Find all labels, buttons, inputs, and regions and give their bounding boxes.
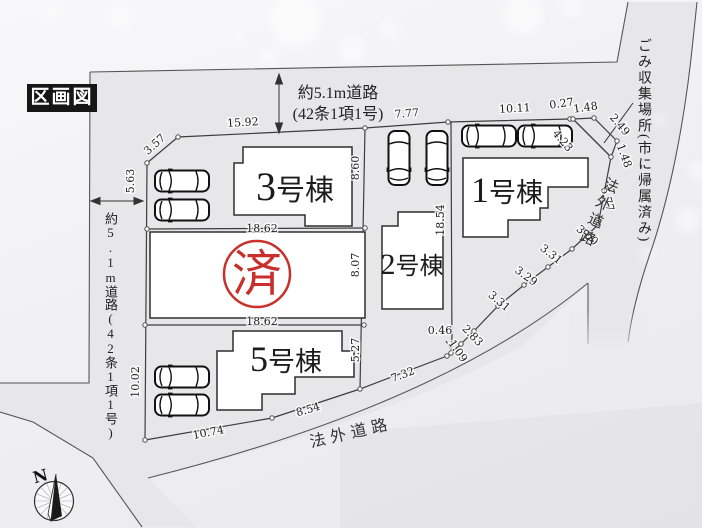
dimension-label: 18.54 — [434, 204, 447, 236]
dimension-label: 18.62 — [246, 222, 278, 235]
background-shade — [340, 403, 702, 528]
dimension-label: 8.07 — [349, 253, 362, 278]
dimension-label: 10.11 — [499, 101, 531, 116]
garbage-collection-label: ごみ収集場所(市に帰属済み) — [633, 38, 653, 243]
dimension-label: 5.63 — [124, 169, 137, 194]
car-icon — [425, 131, 450, 185]
sold-stamp: 済 — [224, 241, 290, 307]
car-icon — [387, 131, 412, 185]
car-icon — [155, 393, 209, 418]
road-fade — [570, 308, 646, 364]
car-icon — [155, 365, 209, 390]
site-plan: 3号棟 1号棟 2号棟 5号棟 済 — [0, 0, 702, 528]
sold-stamp-text: 済 — [232, 246, 282, 302]
dimension-label: 10.02 — [129, 366, 142, 398]
compass-north-label: N — [31, 465, 50, 487]
dimension-label: 15.92 — [227, 115, 259, 130]
road-label-top-line2: (42条1項1号) — [258, 104, 418, 125]
road-label-top: 約5.1m道路 (42条1項1号) — [258, 83, 418, 125]
car-icon — [462, 124, 516, 149]
road-label-top-line1: 約5.1m道路 — [258, 83, 418, 104]
car-icon — [155, 169, 209, 194]
dimension-label: 18.62 — [246, 315, 278, 328]
compass-icon: N — [31, 465, 74, 521]
page-title: 区画図 — [27, 84, 97, 112]
dimension-label: 5.27 — [349, 338, 362, 363]
dimension-label: 0.46 — [428, 324, 453, 337]
car-icon — [155, 198, 209, 223]
dimension-label: 8.60 — [349, 156, 362, 181]
road-label-left: 約5.1m道路(42条1項1号) — [101, 212, 120, 440]
